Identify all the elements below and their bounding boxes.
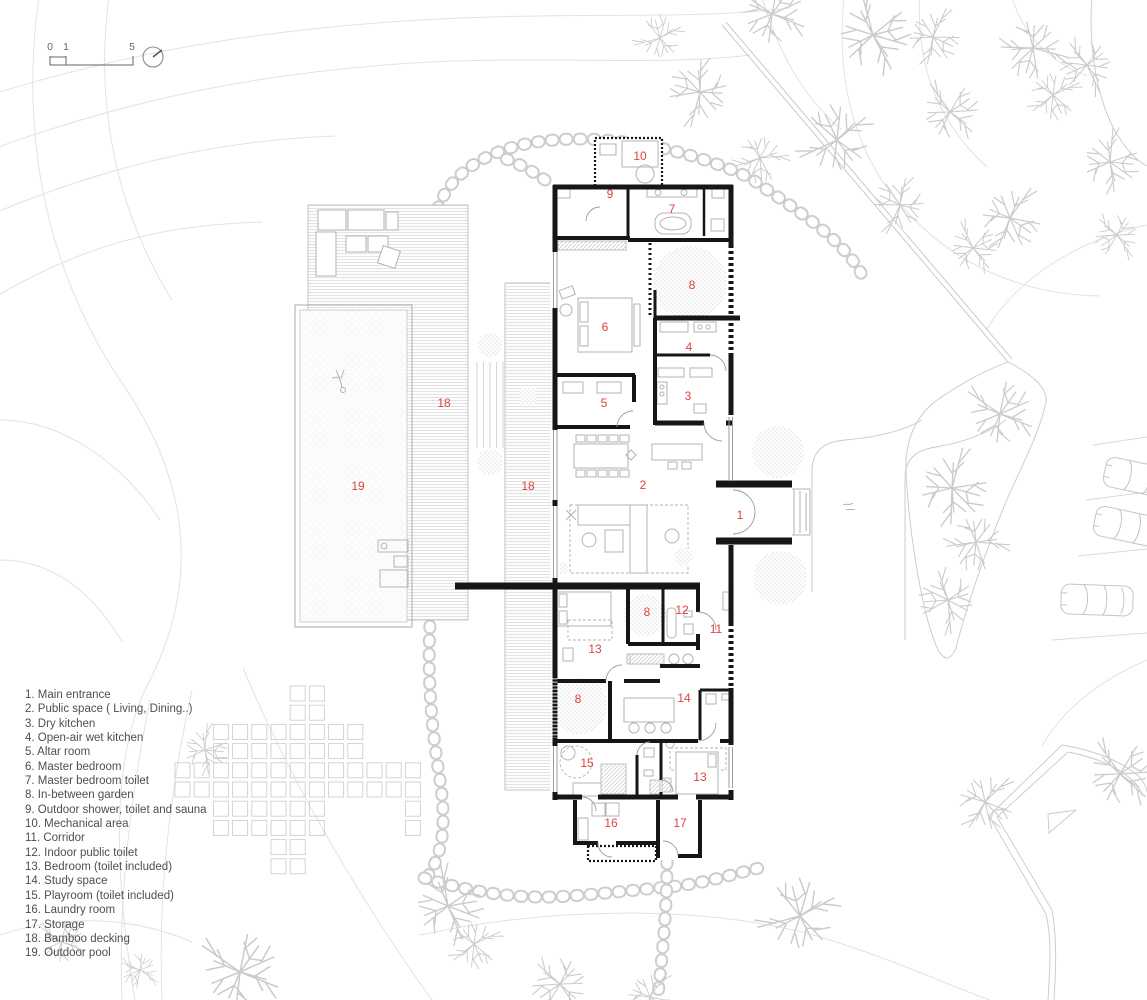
bed xyxy=(557,592,611,626)
room-label-13-upper: 13 xyxy=(588,642,602,656)
paving-stone xyxy=(309,705,324,720)
paving-stone xyxy=(290,763,305,778)
room-label-6: 6 xyxy=(602,320,609,334)
room-label-3: 3 xyxy=(685,389,692,403)
legend-item-9: 9. Outdoor shower, toilet and sauna xyxy=(25,803,207,817)
paving-stone xyxy=(252,820,267,835)
paving-stone xyxy=(271,801,286,816)
study-desk xyxy=(624,698,674,722)
paving-stone xyxy=(329,724,344,739)
paving-stone xyxy=(233,820,248,835)
outdoor-pool xyxy=(295,305,412,627)
parked-cars xyxy=(1060,456,1147,616)
room-label-18-west: 18 xyxy=(437,396,451,410)
paving-stone xyxy=(213,724,228,739)
room-label-2: 2 xyxy=(640,478,647,492)
room-label-8-middle: 8 xyxy=(644,605,651,619)
legend: 1. Main entrance 2. Public space ( Livin… xyxy=(25,688,207,961)
dining-table xyxy=(574,444,628,468)
entrance-footprint xyxy=(714,481,794,543)
scale-bar: 0 1 5 xyxy=(47,41,135,65)
north-arrow-icon xyxy=(143,47,163,67)
planting-island xyxy=(906,362,1046,658)
paving-stone xyxy=(271,724,286,739)
room-label-11: 11 xyxy=(710,622,723,636)
paving-stone xyxy=(252,724,267,739)
paving-stone xyxy=(290,724,305,739)
paving-stone xyxy=(405,763,420,778)
paving-stone xyxy=(348,782,363,797)
paving-stone xyxy=(252,744,267,759)
drying-deck xyxy=(588,846,656,861)
toilet xyxy=(706,694,716,704)
paving-stone xyxy=(271,820,286,835)
round-tree xyxy=(477,449,503,475)
paving-stone xyxy=(309,744,324,759)
paving-stone xyxy=(348,744,363,759)
paving-stone xyxy=(290,744,305,759)
room-label-1: 1 xyxy=(737,508,744,522)
bamboo-deck-strip xyxy=(505,283,553,790)
paving-stone xyxy=(386,763,401,778)
toilet xyxy=(557,189,570,198)
paving-stone xyxy=(290,801,305,816)
legend-item-14: 14. Study space xyxy=(25,874,207,888)
paving-stone xyxy=(405,801,420,816)
paving-stone xyxy=(213,801,228,816)
paving-stone xyxy=(271,782,286,797)
sink xyxy=(644,770,653,776)
toilet xyxy=(712,189,724,198)
legend-item-7: 7. Master bedroom toilet xyxy=(25,774,207,788)
paving-stone xyxy=(309,782,324,797)
room-label-4: 4 xyxy=(686,340,693,354)
paving-stone xyxy=(271,763,286,778)
round-tree xyxy=(753,551,807,605)
paving-stone xyxy=(329,763,344,778)
paving-stone xyxy=(348,724,363,739)
paving-stone xyxy=(290,859,305,874)
paving-stone xyxy=(309,724,324,739)
round-tree xyxy=(478,333,502,357)
legend-item-3: 3. Dry kitchen xyxy=(25,717,207,731)
scale-tick-5: 5 xyxy=(129,41,135,53)
paving-stone xyxy=(233,801,248,816)
planter-box xyxy=(520,388,537,405)
paving-stone xyxy=(367,763,382,778)
road-triangle-marker xyxy=(1048,810,1076,833)
deck-walkway xyxy=(477,362,503,448)
legend-item-16: 16. Laundry room xyxy=(25,903,207,917)
paving-stone xyxy=(329,782,344,797)
paving-stone xyxy=(405,782,420,797)
scale-tick-1: 1 xyxy=(63,41,69,53)
entrance-steps xyxy=(792,489,810,535)
room-label-19: 19 xyxy=(351,479,365,493)
paving-stone xyxy=(367,782,382,797)
legend-item-11: 11. Corridor xyxy=(25,831,207,845)
paving-stone xyxy=(290,820,305,835)
paving-stone xyxy=(290,840,305,855)
room-label-14: 14 xyxy=(677,691,691,705)
scale-tick-0: 0 xyxy=(47,41,53,53)
paving-stone xyxy=(213,820,228,835)
room-label-5: 5 xyxy=(601,396,608,410)
round-tree xyxy=(752,426,804,478)
paving-stone xyxy=(348,763,363,778)
legend-item-13: 13. Bedroom (toilet included) xyxy=(25,860,207,874)
room-label-9: 9 xyxy=(607,187,614,201)
toilet xyxy=(644,748,654,757)
legend-item-17: 17. Storage xyxy=(25,918,207,932)
legend-item-5: 5. Altar room xyxy=(25,745,207,759)
roads xyxy=(812,0,1147,1000)
paving-stone xyxy=(252,782,267,797)
room-label-12: 12 xyxy=(675,603,689,617)
paving-grid xyxy=(175,686,420,874)
toilet xyxy=(684,624,693,634)
legend-item-2: 2. Public space ( Living, Dining..) xyxy=(25,702,207,716)
paving-stone xyxy=(213,782,228,797)
legend-item-1: 1. Main entrance xyxy=(25,688,207,702)
paving-stone xyxy=(405,820,420,835)
paving-stone xyxy=(252,763,267,778)
paving-stone xyxy=(213,763,228,778)
room-label-18-strip: 18 xyxy=(521,479,535,493)
legend-item-4: 4. Open-air wet kitchen xyxy=(25,731,207,745)
room-label-8-lower: 8 xyxy=(575,692,582,706)
paving-stone xyxy=(233,744,248,759)
legend-item-10: 10. Mechanical area xyxy=(25,817,207,831)
legend-item-15: 15. Playroom (toilet included) xyxy=(25,889,207,903)
washer xyxy=(592,803,605,816)
paving-stone xyxy=(271,840,286,855)
room-label-15: 15 xyxy=(580,756,594,770)
paving-stone xyxy=(252,801,267,816)
paving-stone xyxy=(290,705,305,720)
paving-stone xyxy=(329,744,344,759)
paving-stone xyxy=(290,686,305,701)
kitchen-island xyxy=(652,444,702,460)
legend-item-19: 19. Outdoor pool xyxy=(25,946,207,960)
paving-stone xyxy=(309,763,324,778)
paving-stone xyxy=(233,782,248,797)
paving-stone xyxy=(233,724,248,739)
paving-stone xyxy=(309,686,324,701)
site-plan-page: 0 1 5 10 9 7 8 6 4 3 5 18 2 19 18 1 8 12… xyxy=(0,0,1147,1000)
wardrobe xyxy=(558,241,626,250)
legend-item-6: 6. Master bedroom xyxy=(25,760,207,774)
room-label-13-lower: 13 xyxy=(693,770,707,784)
room-label-8-upper: 8 xyxy=(689,278,696,292)
legend-item-12: 12. Indoor public toilet xyxy=(25,846,207,860)
paving-stone xyxy=(233,763,248,778)
room-label-10: 10 xyxy=(633,149,647,163)
dryer xyxy=(606,803,619,816)
paving-stone xyxy=(271,859,286,874)
garden-tree-lower xyxy=(551,678,607,734)
paving-stone xyxy=(386,782,401,797)
bird-sketch xyxy=(843,503,855,510)
legend-item-8: 8. In-between garden xyxy=(25,788,207,802)
room-label-7: 7 xyxy=(669,202,676,216)
legend-item-18: 18. Bamboo decking xyxy=(25,932,207,946)
room-label-17: 17 xyxy=(673,816,687,830)
room-label-16: 16 xyxy=(604,816,618,830)
